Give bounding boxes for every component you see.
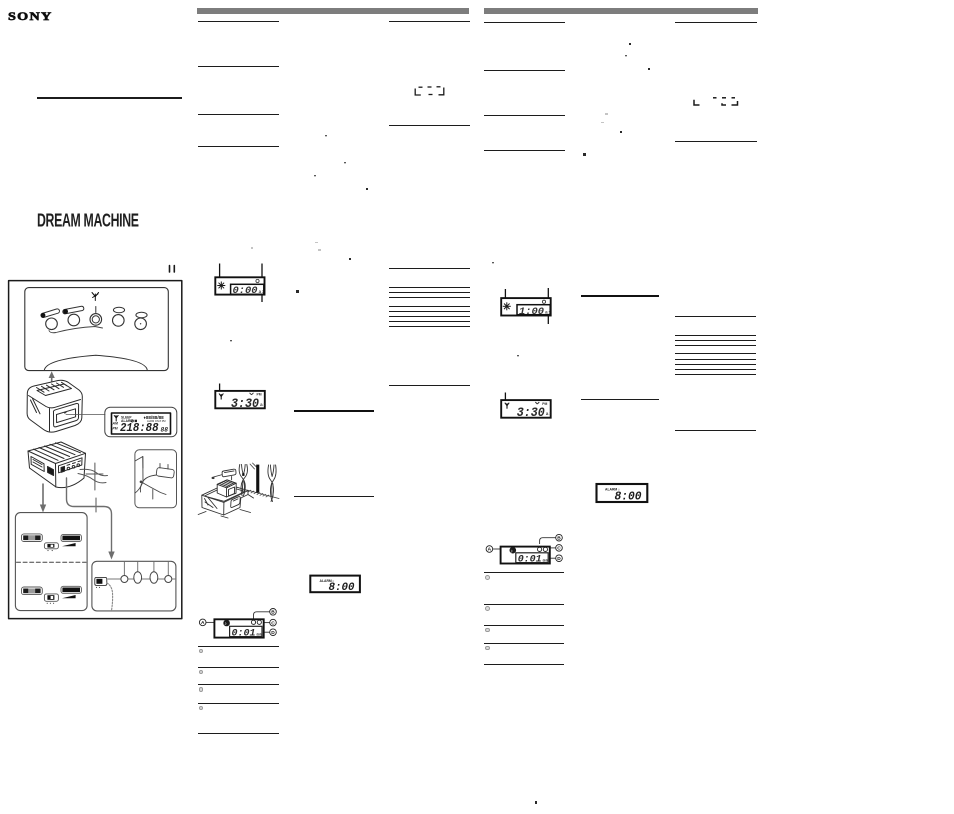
svg-text:aa: aa	[542, 558, 548, 563]
svg-text:a:: a:	[259, 290, 265, 295]
svg-text:AM: AM	[112, 422, 118, 426]
svg-text:8:00: 8:00	[615, 490, 642, 503]
svg-text:218:88: 218:88	[120, 421, 159, 435]
svg-text:a:: a:	[546, 412, 552, 417]
svg-text:aa: aa	[256, 632, 262, 637]
svg-text:A: A	[488, 547, 492, 553]
svg-text:0:00: 0:00	[233, 285, 258, 297]
svg-text:a:: a:	[545, 311, 551, 316]
svg-text:A: A	[201, 620, 205, 626]
svg-text:1:00: 1:00	[519, 306, 544, 318]
svg-text:8:00: 8:00	[329, 582, 355, 594]
svg-text:D: D	[557, 556, 561, 562]
svg-text:3:30: 3:30	[231, 397, 259, 411]
svg-text:B: B	[557, 535, 561, 541]
svg-text:0:01: 0:01	[518, 555, 542, 566]
svg-text:PM: PM	[113, 427, 118, 431]
svg-text:a:: a:	[260, 403, 266, 408]
svg-text:D: D	[271, 630, 275, 636]
svg-text:3:30: 3:30	[517, 406, 545, 420]
svg-text:88: 88	[161, 426, 169, 433]
svg-text:B: B	[271, 610, 275, 616]
svg-text:C: C	[557, 546, 561, 552]
svg-text:0:01: 0:01	[232, 628, 256, 640]
svg-text:C: C	[271, 620, 275, 626]
